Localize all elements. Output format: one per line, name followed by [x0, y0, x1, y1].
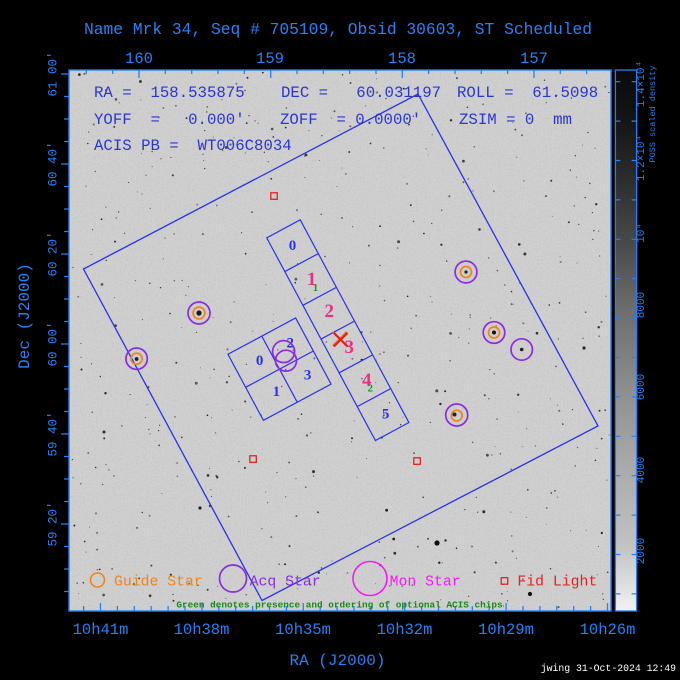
- svg-text:10⁴: 10⁴: [636, 223, 648, 243]
- svg-text:Mon Star: Mon Star: [390, 575, 461, 591]
- svg-text:ZOFF = 0.0000': ZOFF = 0.0000': [280, 111, 421, 129]
- svg-text:61 00': 61 00': [47, 51, 61, 96]
- svg-text:ROLL = 61.5098: ROLL = 61.5098: [457, 84, 598, 102]
- svg-text:159: 159: [256, 50, 284, 68]
- svg-text:157: 157: [520, 50, 548, 68]
- svg-text:3: 3: [304, 368, 312, 384]
- svg-text:RA = 158.535875: RA = 158.535875: [94, 84, 245, 102]
- svg-text:60 00': 60 00': [47, 321, 61, 366]
- svg-text:RA (J2000): RA (J2000): [289, 652, 385, 670]
- svg-text:10h38m: 10h38m: [174, 621, 230, 639]
- svg-text:10h29m: 10h29m: [478, 621, 534, 639]
- svg-text:0: 0: [256, 353, 264, 369]
- svg-text:Guide Star: Guide Star: [114, 575, 203, 591]
- svg-text:3: 3: [344, 337, 354, 358]
- svg-text:4000: 4000: [636, 457, 648, 483]
- svg-text:10h41m: 10h41m: [73, 621, 129, 639]
- svg-text:59 20': 59 20': [47, 501, 61, 546]
- svg-text:1: 1: [273, 384, 281, 400]
- svg-text:10h26m: 10h26m: [580, 621, 636, 639]
- svg-text:6000: 6000: [636, 374, 648, 400]
- svg-text:160: 160: [125, 50, 153, 68]
- svg-text:10h35m: 10h35m: [275, 621, 331, 639]
- svg-text:jwing 31-Oct-2024 12:49: jwing 31-Oct-2024 12:49: [541, 663, 676, 674]
- svg-text:DEC = 60.031197: DEC = 60.031197: [281, 84, 441, 102]
- svg-text:60 20': 60 20': [47, 231, 61, 276]
- svg-text:Fid Light: Fid Light: [517, 575, 597, 591]
- svg-text:ZSIM = 0 mm: ZSIM = 0 mm: [459, 111, 572, 129]
- svg-text:0: 0: [289, 238, 297, 254]
- svg-text:1.4×10⁴: 1.4×10⁴: [636, 61, 648, 107]
- svg-text:59 40': 59 40': [47, 411, 61, 456]
- svg-text:POSS scaled density: POSS scaled density: [648, 66, 658, 163]
- svg-text:Name Mrk 34, Seq # 705109, Obs: Name Mrk 34, Seq # 705109, Obsid 30603, …: [84, 20, 592, 39]
- svg-text:5: 5: [382, 407, 390, 423]
- svg-text:Acq Star: Acq Star: [250, 575, 321, 591]
- svg-text:158: 158: [388, 50, 416, 68]
- svg-text:8000: 8000: [636, 292, 648, 318]
- svg-text:10h32m: 10h32m: [377, 621, 433, 639]
- svg-text:60 40': 60 40': [47, 141, 61, 186]
- svg-text:ACIS PB = WT006C8034: ACIS PB = WT006C8034: [94, 137, 292, 155]
- svg-text:YOFF = 0.000': YOFF = 0.000': [94, 111, 245, 129]
- svg-text:Dec (J2000): Dec (J2000): [16, 263, 34, 369]
- svg-text:2: 2: [325, 301, 335, 322]
- svg-text:1: 1: [313, 282, 319, 294]
- svg-text:Green denotes presence and ord: Green denotes presence and ordering of o…: [176, 600, 503, 611]
- svg-text:2: 2: [368, 383, 374, 395]
- svg-text:2000: 2000: [636, 538, 648, 564]
- svg-text:1.2×10⁴: 1.2×10⁴: [636, 135, 648, 181]
